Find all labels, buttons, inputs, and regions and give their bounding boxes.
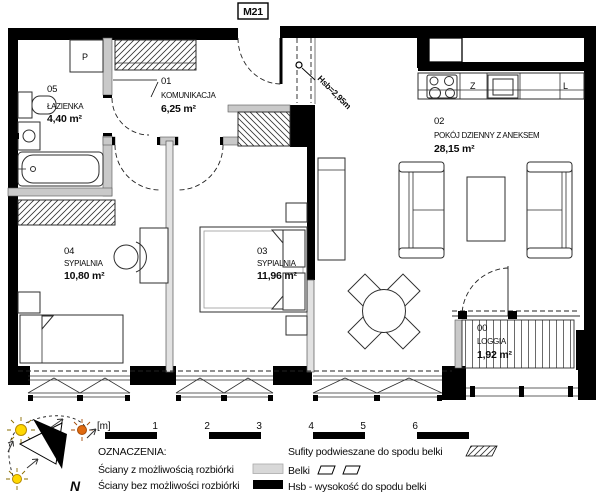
- room-label-sypialnia-04: 04 SYPIALNIA 10,80 m²: [64, 246, 105, 282]
- kitchen-counter: Z L: [418, 73, 584, 99]
- nightstand-icon: [286, 316, 307, 335]
- room-number: 00: [477, 323, 487, 334]
- legend-swatch-fixed-wall: [253, 480, 283, 489]
- vent-shaft: [429, 38, 462, 62]
- room-name: POKÓJ DZIENNY Z ANEKSEM: [434, 131, 540, 140]
- legend-suspended-ceilings: Sufity podwieszane do spodu belki: [288, 446, 443, 458]
- sink-icon: [15, 122, 40, 150]
- room-name: SYPIALNIA: [64, 259, 104, 268]
- hsb-annotation: Hsb=2,95m: [296, 62, 354, 112]
- bed-icon: [20, 315, 123, 363]
- dining-table-icon: [363, 290, 406, 333]
- room-area: 11,96 m²: [257, 270, 298, 282]
- window: [313, 376, 442, 401]
- room-number: 03: [257, 246, 267, 257]
- legend-hsb-note: Hsb - wysokość do spodu belki: [288, 481, 426, 493]
- legend-walls-removable: Ściany z możliwością rozbiórki: [98, 463, 234, 476]
- bedroom04-door-swing: [115, 145, 160, 190]
- cabinet-icon: [318, 158, 345, 260]
- room-area: 10,80 m²: [64, 270, 105, 282]
- room-name: LOGGIA: [477, 337, 507, 346]
- wardrobe-icon: [238, 112, 290, 146]
- legend-beams: Belki: [288, 465, 310, 477]
- legend-heading: OZNACZENIA:: [98, 446, 166, 458]
- room-name: SYPIALNIA: [257, 259, 297, 268]
- north-arrow-icon: [20, 419, 67, 469]
- scale-tick: 1: [152, 421, 158, 432]
- legend-swatch-beam: [318, 466, 335, 474]
- room-number: 04: [64, 246, 74, 257]
- wardrobe-icon: [18, 200, 115, 225]
- scale-tick: 6: [412, 421, 418, 432]
- loggia-door-swing: [462, 268, 508, 316]
- bedroom04-furniture: [18, 228, 168, 363]
- windows: [28, 376, 442, 401]
- scale-unit: [m]: [97, 421, 111, 432]
- window: [28, 376, 130, 401]
- unit-number: M21: [243, 6, 263, 18]
- bedroom03-door-swing: [178, 145, 223, 190]
- wardrobe-icon: [115, 40, 196, 70]
- legend: OZNACZENIA: Ściany z możliwością rozbiór…: [98, 446, 497, 493]
- sun-icon: [6, 468, 28, 490]
- room-number: 05: [47, 84, 57, 95]
- legend-walls-fixed: Ściany bez możliwości rozbiórki: [98, 479, 239, 492]
- fridge-label: L: [563, 81, 568, 91]
- room-label-komunikacja: 01 KOMUNIKACJA 6,25 m²: [113, 76, 216, 115]
- nightstand-icon: [286, 203, 307, 222]
- entrance-door-swing: [238, 38, 281, 84]
- unit-badge: M21: [238, 3, 268, 19]
- bathtub-icon: [18, 152, 103, 186]
- room-area: 1,92 m²: [477, 349, 512, 361]
- room-number: 01: [161, 76, 171, 87]
- legend-swatch-beam: [343, 466, 360, 474]
- sofa-icon: [399, 162, 444, 258]
- scale-tick: 4: [308, 421, 314, 432]
- sun-icon: [71, 419, 93, 441]
- desk-icon: [140, 228, 168, 283]
- bathroom-door-swing: [112, 98, 149, 135]
- room-label-pokoj-dzienny: 02 POKÓJ DZIENNY Z ANEKSEM 28,15 m²: [434, 116, 540, 155]
- room-number: 02: [434, 116, 444, 127]
- beam-height-label: Hsb=2,95m: [316, 73, 354, 111]
- scale-tick: 3: [256, 421, 262, 432]
- room-area: 4,40 m²: [47, 113, 82, 125]
- wardrobes: [18, 40, 290, 225]
- room-area: 6,25 m²: [161, 103, 196, 115]
- sink-label: Z: [470, 81, 476, 91]
- scale-tick: 5: [360, 421, 366, 432]
- floor-plan: Z L P: [0, 0, 604, 415]
- washing-machine-label: P: [82, 52, 88, 62]
- dining-set: [348, 274, 420, 349]
- room-area: 28,15 m²: [434, 143, 475, 155]
- sofa-icon: [527, 162, 572, 258]
- scale-bar: [m] 1 2 3 4 5 6: [97, 421, 469, 439]
- room-name: KOMUNIKACJA: [161, 91, 216, 100]
- coffee-table-icon: [467, 177, 505, 241]
- loggia: [452, 311, 580, 397]
- scale-tick: 2: [204, 421, 210, 432]
- north-label: N: [70, 478, 81, 494]
- room-label-lazienka: 05 ŁAZIENKA 4,40 m²: [47, 84, 84, 125]
- hob-icon: [427, 75, 457, 99]
- plan-footer: N [m] 1 2 3 4 5 6 OZNACZENIA: Ściany z m…: [0, 415, 604, 500]
- bedroom03-furniture: [200, 203, 307, 335]
- room-name: ŁAZIENKA: [47, 102, 84, 111]
- legend-swatch-ceiling-hatch: [466, 446, 497, 456]
- compass-rose: N: [6, 416, 96, 494]
- window: [176, 376, 273, 401]
- legend-swatch-removable-wall: [253, 464, 283, 474]
- oven-icon: [488, 75, 518, 98]
- floor-plan-page: Z L P: [0, 0, 604, 500]
- nightstand-icon: [18, 292, 40, 313]
